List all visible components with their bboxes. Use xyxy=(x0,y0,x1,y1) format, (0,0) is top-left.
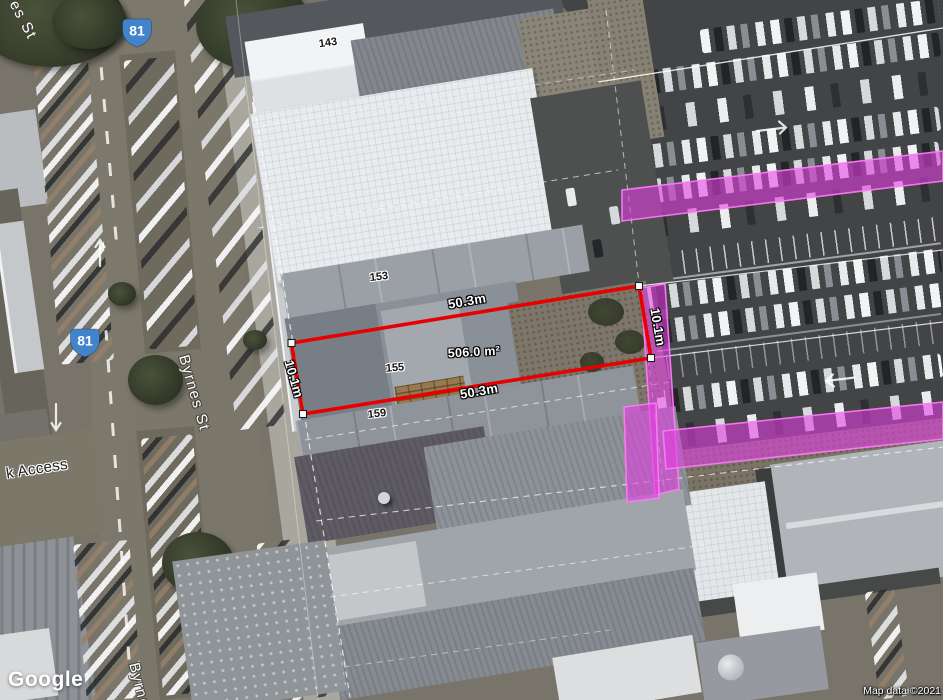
highlight-strip xyxy=(624,403,659,502)
google-logo[interactable]: Google xyxy=(8,668,83,692)
highlight-areas xyxy=(622,151,943,502)
route-number: 81 xyxy=(68,328,102,359)
road-markings xyxy=(52,122,856,431)
vertex-marker[interactable] xyxy=(300,411,307,418)
vertex-marker[interactable] xyxy=(636,283,643,290)
parcel-number-155: 155 xyxy=(385,361,404,375)
route-81-shield-south: 81 xyxy=(68,328,102,359)
route-81-shield-north: 81 xyxy=(120,18,154,49)
vertex-marker[interactable] xyxy=(648,355,655,362)
cadastral-lines xyxy=(236,0,943,700)
map-attribution: Map data ©2021 xyxy=(863,685,941,697)
route-number: 81 xyxy=(120,18,154,49)
map-canvas[interactable]: es St Byrnes St Byrnes St k Access 143 1… xyxy=(0,0,943,700)
parcel-number-143: 143 xyxy=(318,36,338,50)
measurement-area: 506.0 m² xyxy=(447,344,500,361)
parcel-number-153: 153 xyxy=(369,270,389,284)
highlight-strip xyxy=(663,402,943,469)
vertex-marker[interactable] xyxy=(288,340,295,347)
highlight-strip xyxy=(622,151,943,221)
parcel-number-159: 159 xyxy=(367,407,387,421)
